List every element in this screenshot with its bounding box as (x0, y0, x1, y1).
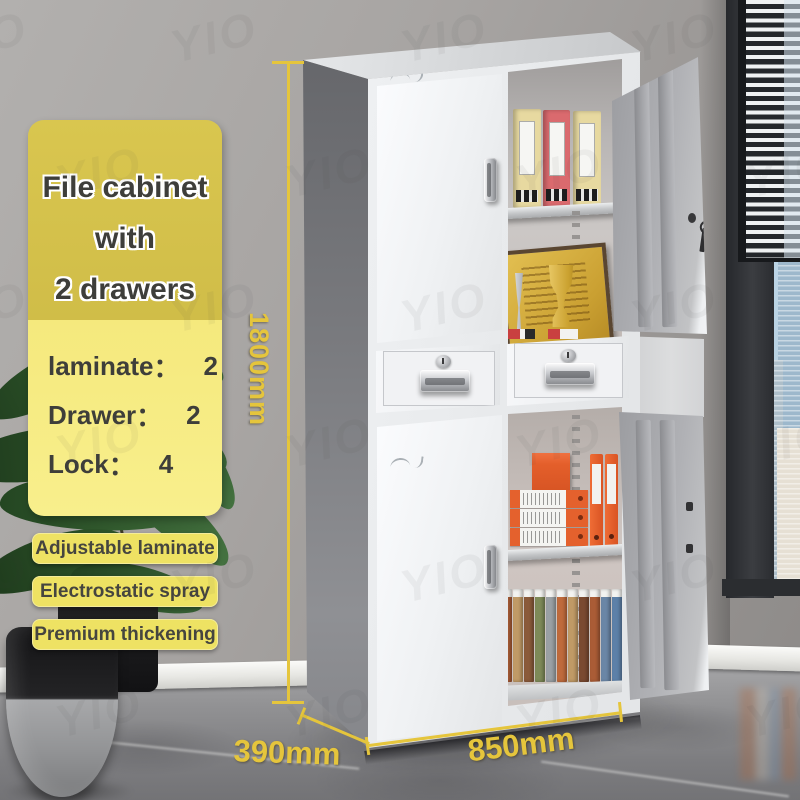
door-ridge (636, 420, 656, 688)
sheer-curtain (784, 0, 800, 258)
door-ridge (658, 59, 678, 327)
spec-colon: ： (109, 446, 135, 483)
panel-title-line: 2 drawers (28, 264, 222, 315)
file-binder (543, 110, 570, 207)
door-lock (686, 502, 693, 511)
book-row (502, 584, 628, 682)
book-spine (535, 589, 545, 682)
drawer-lock (436, 355, 451, 368)
book-spine (546, 589, 556, 682)
door-handle (484, 545, 497, 589)
drawer-right (507, 336, 630, 406)
product-photo-scene: 1800mm 390mm 850mm File cabinet with 2 d… (0, 0, 800, 800)
feature-pill: Premium thickening (32, 619, 218, 650)
brand-mark-icon (390, 454, 424, 470)
spec-label: Drawer (48, 400, 136, 431)
spec-colon: ： (136, 397, 162, 434)
spec-value: 2 (204, 351, 218, 382)
binder-stack (510, 490, 588, 547)
spec-value: 4 (159, 449, 173, 480)
orange-archive-box (532, 453, 570, 490)
book-spine (513, 589, 523, 682)
dimension-cap (272, 701, 304, 704)
floor-reflection (740, 688, 796, 780)
door-lock (686, 544, 693, 553)
feature-pill: Adjustable laminate (32, 533, 218, 564)
upright-binder (605, 454, 618, 547)
book-spine (568, 589, 578, 682)
info-panel-specs-section: laminate：2 Drawer：2 Lock：4 (28, 320, 222, 516)
book-spine (579, 589, 589, 682)
spec-value: 2 (186, 400, 200, 431)
book-spine (590, 589, 600, 682)
book-spine (601, 589, 611, 682)
info-panel-title-section: File cabinet with 2 drawers (28, 120, 222, 320)
upright-binder (590, 454, 603, 548)
info-panel: File cabinet with 2 drawers laminate：2 D… (28, 120, 222, 516)
cabinet-bottom-panel (505, 680, 626, 700)
depth-dimension-label: 390mm (216, 733, 357, 772)
book-spine (557, 589, 567, 682)
panel-title-line: with (28, 213, 222, 264)
stacked-binder (510, 528, 588, 546)
file-binder (573, 111, 601, 207)
cabinet-opening-top (508, 59, 622, 348)
keyhole (688, 213, 696, 223)
spec-label: Lock (48, 449, 109, 480)
cabinet-side-panel (300, 58, 370, 753)
open-door-bottom-right (616, 410, 716, 702)
spec-row: Lock：4 (48, 440, 222, 489)
cabinet-opening-bottom (508, 407, 622, 707)
skyscraper (777, 428, 800, 584)
door-top-left (377, 74, 502, 343)
feature-pill: Electrostatic spray (32, 576, 218, 607)
spec-row: laminate：2 (48, 342, 222, 391)
stacked-binder (510, 490, 588, 508)
file-binder (513, 109, 541, 208)
baseboard (698, 645, 800, 672)
window-sill (722, 579, 800, 596)
panel-title-line: File cabinet (28, 162, 222, 213)
award-items (508, 329, 578, 339)
drawer-left (376, 344, 502, 414)
height-dimension-label: 1800mm (242, 309, 274, 429)
cabinet-front (368, 52, 640, 752)
dimension-cap (272, 61, 304, 64)
book-spine (612, 589, 622, 682)
book-spine (524, 589, 534, 682)
drawer-lock (561, 349, 576, 362)
book-spine (502, 589, 512, 682)
open-door-top-right (610, 55, 712, 337)
drawer-handle (420, 370, 470, 392)
height-dimension-line (287, 62, 290, 703)
door-ridge (660, 420, 680, 690)
door-handle (484, 158, 497, 202)
door-ridge (634, 61, 654, 327)
spec-colon: ： (154, 348, 180, 385)
spec-row: Drawer：2 (48, 391, 222, 440)
drawer-handle (545, 363, 595, 385)
spec-label: laminate (48, 351, 154, 382)
stacked-binder (510, 509, 588, 527)
